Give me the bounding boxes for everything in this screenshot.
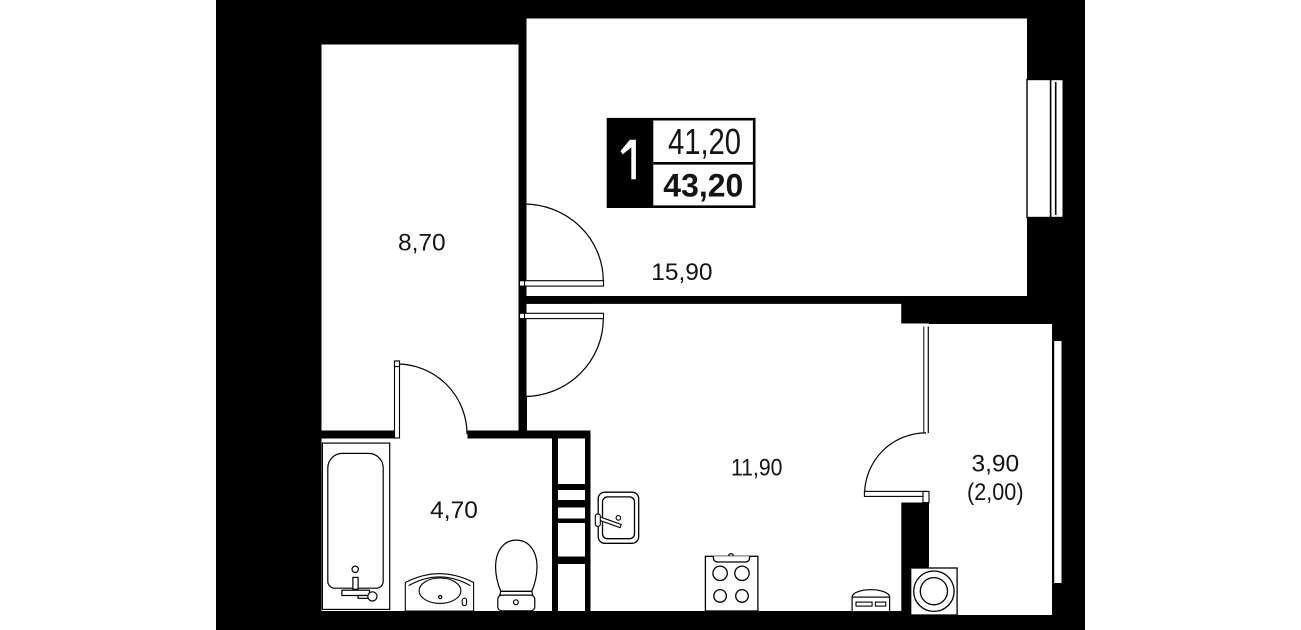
svg-text:41,20: 41,20 (668, 121, 741, 162)
svg-text:8,70: 8,70 (398, 229, 446, 256)
svg-text:4,70: 4,70 (430, 497, 478, 524)
svg-text:(2,00): (2,00) (967, 479, 1024, 506)
svg-text:43,20: 43,20 (663, 168, 743, 204)
svg-text:11,90: 11,90 (731, 455, 783, 482)
svg-text:15,90: 15,90 (651, 259, 712, 286)
svg-text:3,90: 3,90 (971, 450, 1019, 477)
